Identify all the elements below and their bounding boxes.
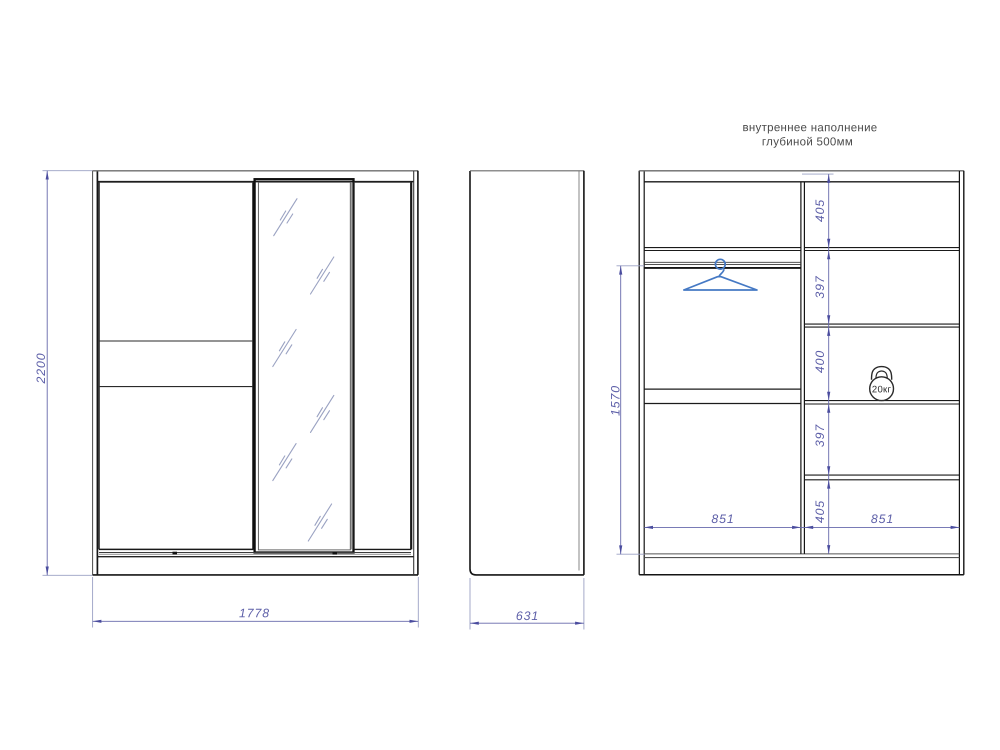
svg-text:внутреннее наполнение: внутреннее наполнение [742,122,877,134]
svg-text:2200: 2200 [34,353,48,385]
svg-text:405: 405 [813,500,827,523]
svg-text:397: 397 [813,424,827,447]
svg-text:851: 851 [711,512,734,526]
svg-text:405: 405 [813,199,827,222]
svg-text:851: 851 [871,512,894,526]
svg-text:397: 397 [813,275,827,298]
svg-text:20кг: 20кг [872,384,892,395]
svg-text:400: 400 [813,350,827,373]
svg-text:1778: 1778 [239,606,270,620]
svg-text:1570: 1570 [609,385,623,416]
svg-text:631: 631 [516,609,539,623]
svg-text:глубиной 500мм: глубиной 500мм [762,136,853,148]
